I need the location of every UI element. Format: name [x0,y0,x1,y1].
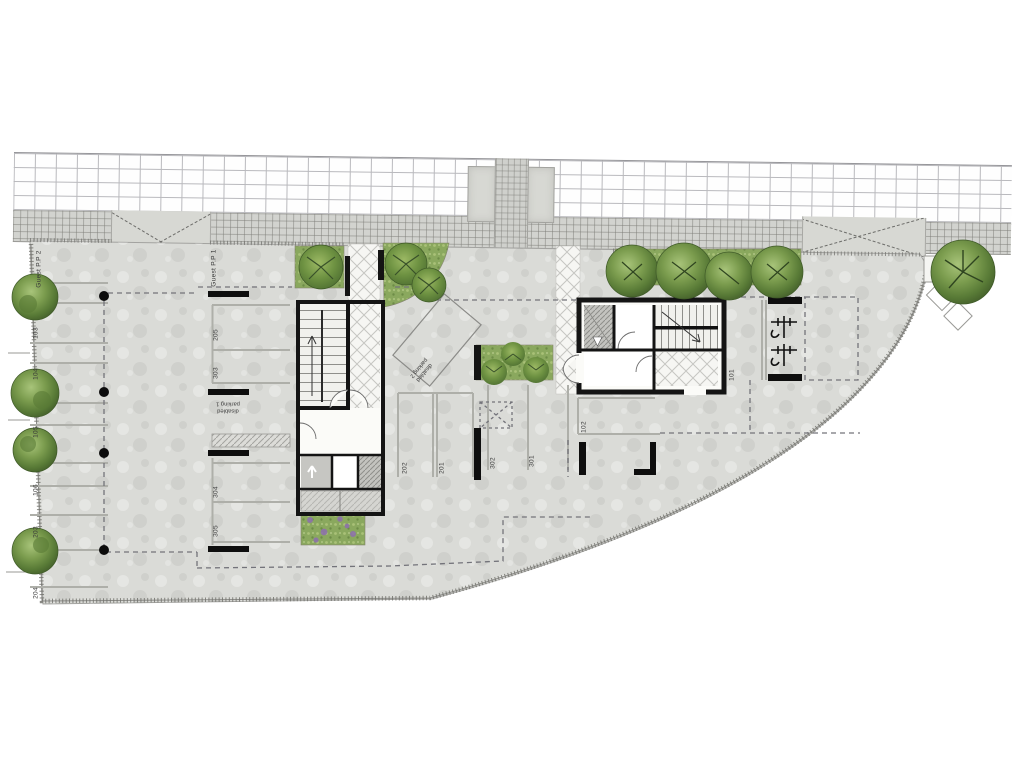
stall-label-201: 201 [439,462,446,474]
stall-label-102: 102 [581,421,588,433]
stall-label-101: 101 [729,369,736,381]
stall-label-205: 205 [213,329,220,341]
stall-label-204: 204 [33,587,40,599]
stall-label-105: 105 [33,426,40,438]
disabled-zone-hatch [212,434,290,447]
stall-label-guest-pp1: Guest P.P 1 [211,249,218,286]
shaft [358,455,383,489]
stall-label-106: 106 [33,484,40,496]
tree-icon [705,252,753,300]
stall-label-103: 103 [33,327,40,339]
tree-icon [751,246,803,298]
site-plan-canvas: Guest P.P 2 103 104 105 106 203 204 Gues… [0,0,1024,768]
palm-tree-icon [299,245,343,289]
stall-label-203: 203 [33,526,40,538]
central-core [298,302,383,514]
stall-label-303: 303 [213,367,220,379]
tree-icon [656,243,712,299]
parking-lot-surface [30,241,928,604]
tree-icon [606,245,658,297]
storage-room [301,455,332,489]
disabled-parking-1-label: disabled parking 1 [216,401,240,414]
stall-label-104: 104 [33,368,40,380]
lobby-tiles [654,352,718,386]
stall-label-guest-pp2: Guest P.P 2 [36,250,43,287]
tree-icon [931,240,995,304]
stall-label-304: 304 [213,486,220,498]
palm-tree-icon [412,268,446,302]
stall-label-301: 301 [529,455,536,467]
stall-label-305: 305 [213,525,220,537]
stall-label-302: 302 [490,457,497,469]
right-core [563,300,724,395]
plan-drawing [0,0,1024,768]
stall-label-202: 202 [402,462,409,474]
